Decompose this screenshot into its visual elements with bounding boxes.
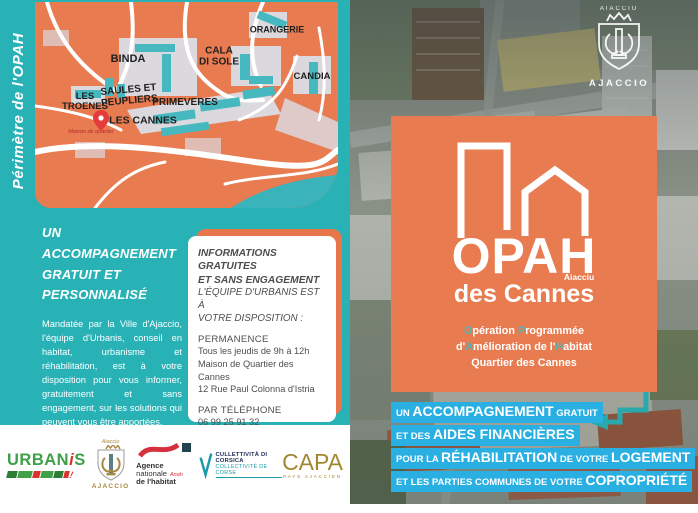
opah-subtitle-superscript: Aiacciu <box>564 272 594 282</box>
opah-logo-card: OPAH des CannesAiacciu Opération Program… <box>391 116 657 392</box>
opah-perimeter-map: ORANGERIE BINDA CALA DI SOLE CANDIA LES … <box>35 2 338 208</box>
buildings-icon <box>449 136 599 238</box>
map-label-primeveres: PRIMEVERES <box>152 98 218 109</box>
permanence-place: Maison de Quartier des Cannes <box>198 358 326 383</box>
left-page: Périmètre de l'OPAH <box>0 0 350 504</box>
map-label-binda: BINDA <box>111 54 146 66</box>
intro-heading: UN ACCOMPAGNEMENT GRATUIT ET PERSONNALIS… <box>42 223 182 306</box>
ajaccio-city-logo: Aiacciu AJACCIO <box>85 439 136 490</box>
map-label-les-cannes: LES CANNES <box>109 115 177 126</box>
map-label-candia: CANDIA <box>294 72 331 82</box>
anah-logo: Agence nationaleAnah de l'habitat <box>136 442 199 486</box>
partner-logos-strip: URBANiS ! Aiacciu AJACCIO <box>0 425 350 504</box>
opah-title: OPAH <box>391 235 657 278</box>
ajaccio-white-crest: AIACCIU AJACCIO <box>573 6 665 89</box>
intro-paragraph-1: Mandatée par la Ville d'Ajaccio, l'équip… <box>42 318 182 430</box>
benefits-banner: UN ACCOMPAGNEMENT GRATUIT ET DES AIDES F… <box>391 402 695 494</box>
permanence-address: 12 Rue Paul Colonna d'Istria <box>198 383 326 396</box>
right-page: AIACCIU AJACCIO OPAH <box>350 0 698 504</box>
banner-line-4: ET LES PARTIES COMMUNES DE VOTRE COPROPR… <box>391 471 692 492</box>
opah-tagline: Opération Programmée d'Amélioration de l… <box>391 323 657 372</box>
map-label-maison-de-quartier: Maison de quartier <box>68 129 114 135</box>
info-card-heading: INFORMATIONS GRATUITES ET SANS ENGAGEMEN… <box>198 247 326 287</box>
phone-label: PAR TÉLÉPHONE <box>198 405 326 416</box>
ajaccio-crest-icon <box>93 445 129 483</box>
map-label-orangerie: ORANGERIE <box>250 25 305 34</box>
corsica-text: CULLETTIVITÀ DI CORSICA COLLECTIVITÉ DE … <box>216 452 283 478</box>
banner-line-1: UN ACCOMPAGNEMENT GRATUIT <box>391 402 603 423</box>
urbanis-logo: URBANiS ! <box>7 451 85 478</box>
urbanis-wordmark: URBANiS <box>7 451 85 470</box>
corsica-check-icon <box>199 449 213 481</box>
map-label-cala-di-sole: CALA DI SOLE <box>199 47 239 68</box>
urbanis-skyline-icon: ! <box>6 471 86 478</box>
opah-subtitle: des CannesAiacciu <box>454 280 594 309</box>
map-perimeter-vertical-label: Périmètre de l'OPAH <box>10 15 28 207</box>
info-card-subheading: L'ÉQUIPE D'URBANIS EST À VOTRE DISPOSITI… <box>198 287 326 325</box>
ajaccio-white-crest-icon <box>587 12 651 78</box>
collectivite-de-corse-logo: CULLETTIVITÀ DI CORSICA COLLECTIVITÉ DE … <box>199 449 282 481</box>
banner-line-2: ET DES AIDES FINANCIÈRES <box>391 425 580 446</box>
info-card: INFORMATIONS GRATUITES ET SANS ENGAGEMEN… <box>188 236 336 422</box>
permanence-schedule: Tous les jeudis de 9h à 12h <box>198 345 326 358</box>
capa-logo: CAPA PAYS AJACCIEN <box>282 451 343 479</box>
anah-ribbon-icon <box>136 442 194 459</box>
permanence-label: PERMANENCE <box>198 334 326 345</box>
banner-line-3: POUR LA RÉHABILITATION DE VOTRE LOGEMENT <box>391 448 695 469</box>
brochure: Périmètre de l'OPAH <box>0 0 698 504</box>
